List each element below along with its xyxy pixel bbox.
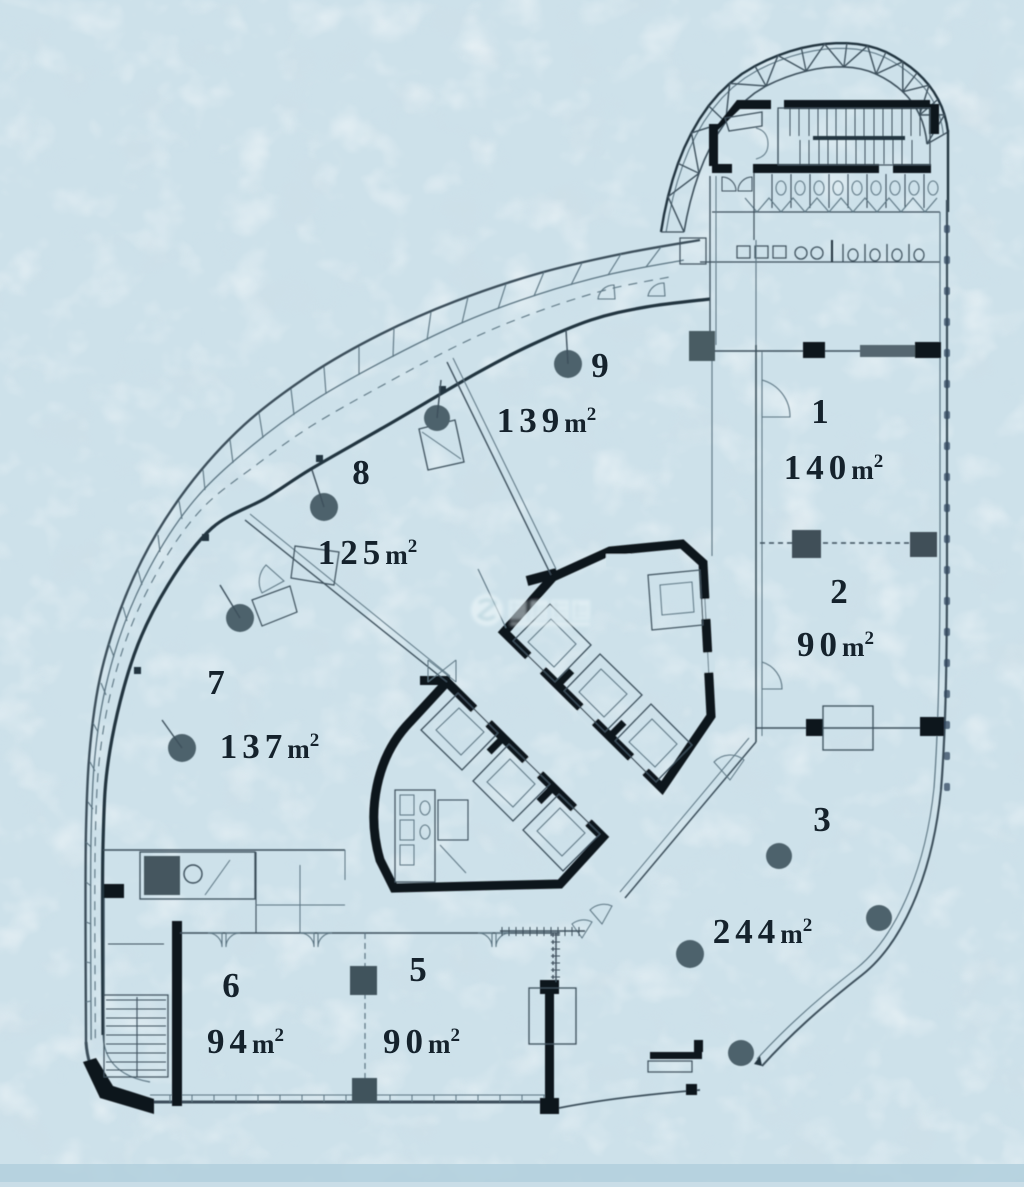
svg-text:7: 7 — [207, 663, 229, 702]
svg-text:8: 8 — [352, 453, 374, 492]
svg-text:5: 5 — [409, 950, 431, 989]
svg-text:1: 1 — [811, 392, 833, 431]
svg-text:2: 2 — [830, 572, 852, 611]
svg-text:6: 6 — [222, 966, 244, 1005]
svg-text:9: 9 — [591, 346, 613, 385]
svg-text:3: 3 — [813, 800, 835, 839]
